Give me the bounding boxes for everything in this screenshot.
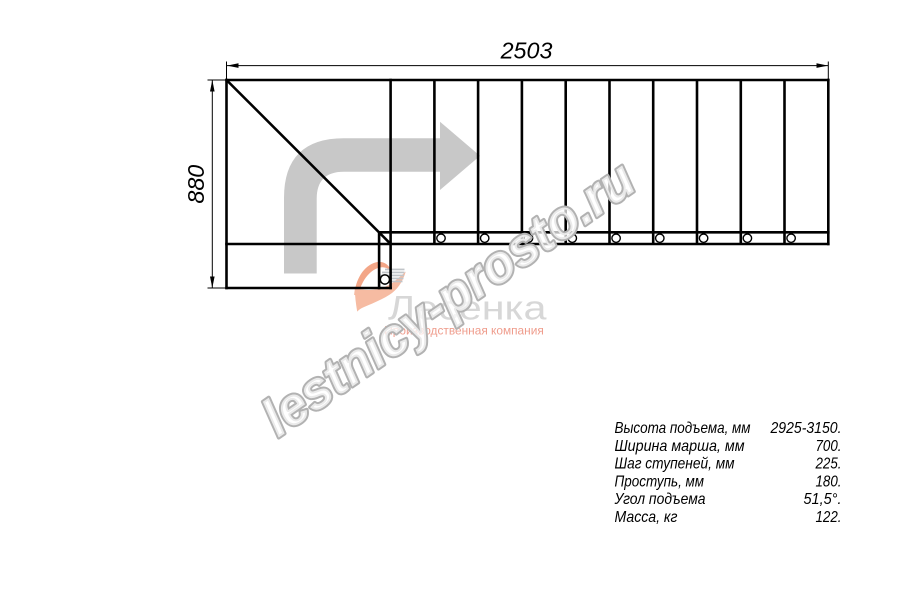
svg-text:2925-3150.: 2925-3150. <box>770 420 842 437</box>
svg-text:51,5°.: 51,5°. <box>804 491 842 508</box>
svg-text:700.: 700. <box>816 438 842 455</box>
svg-text:Проступь, мм: Проступь, мм <box>615 473 705 490</box>
svg-text:Масса, кг: Масса, кг <box>615 509 678 526</box>
svg-text:Ширина марша, мм: Ширина марша, мм <box>615 438 745 455</box>
svg-text:180.: 180. <box>816 473 842 490</box>
svg-text:Угол подъема: Угол подъема <box>614 491 706 508</box>
svg-text:2503: 2503 <box>500 38 553 64</box>
svg-text:225.: 225. <box>815 456 842 473</box>
svg-text:122.: 122. <box>816 509 842 526</box>
svg-text:Шаг ступеней, мм: Шаг ступеней, мм <box>615 456 735 473</box>
svg-text:880: 880 <box>183 165 209 204</box>
svg-text:Высота подъема, мм: Высота подъема, мм <box>615 420 751 437</box>
